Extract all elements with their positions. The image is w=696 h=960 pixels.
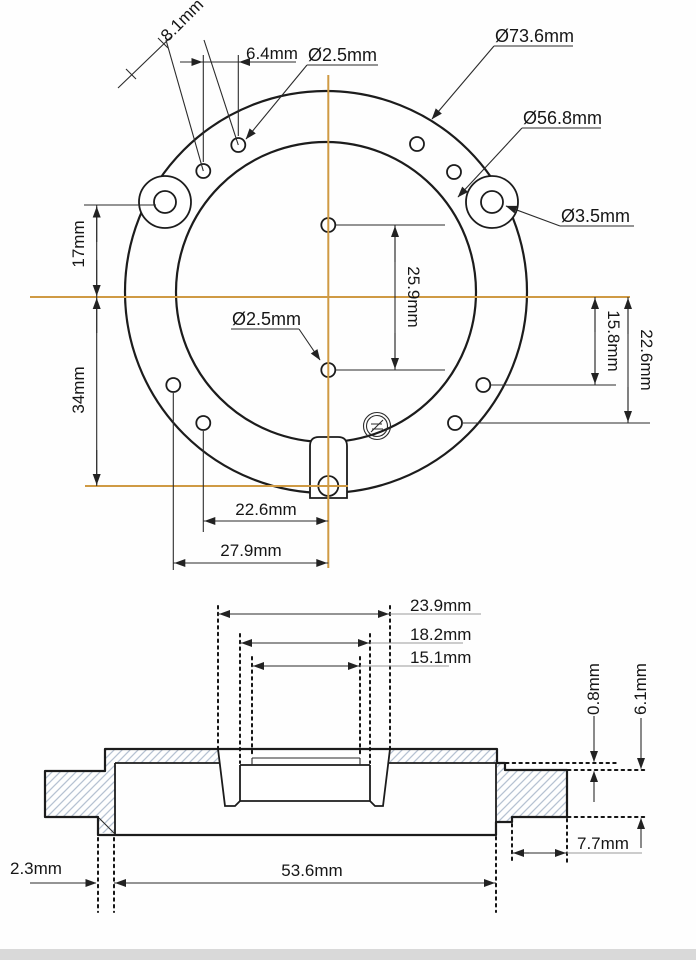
- dim-8-1: 8.1mm: [118, 0, 238, 171]
- dim-label-23-9: 23.9mm: [410, 596, 471, 615]
- dim-label-2-3: 2.3mm: [10, 859, 62, 878]
- page-edge-band: [0, 949, 696, 960]
- dim-label-6-4: 6.4mm: [246, 44, 298, 63]
- dim-label-15-8: 15.8mm: [604, 310, 623, 371]
- technical-drawing-page: 6.4mm 8.1mm Ø2.5mm Ø73.6mm Ø56.8mm: [0, 0, 696, 960]
- dim-17: 17mm: [69, 205, 156, 297]
- dim-34: 34mm: [69, 297, 97, 486]
- label-dia-2-5-center: Ø2.5mm: [231, 309, 320, 360]
- inner-bore-circle: [176, 142, 476, 442]
- dim-label-8-1: 8.1mm: [157, 0, 207, 45]
- certification-mark-icon: [364, 413, 391, 440]
- dim-18-2: 18.2mm: [240, 625, 471, 644]
- dia-small-hole-center-label: Ø2.5mm: [232, 309, 301, 329]
- dim-6-1: 6.1mm: [631, 663, 650, 848]
- label-dia-3-5: Ø3.5mm: [506, 206, 634, 226]
- dia-small-hole-top-label: Ø2.5mm: [308, 45, 377, 65]
- dim-label-17: 17mm: [69, 220, 88, 267]
- dim-label-53-6: 53.6mm: [281, 861, 342, 880]
- dim-label-15-1: 15.1mm: [410, 648, 471, 667]
- label-dia-73-6: Ø73.6mm: [432, 26, 574, 119]
- top-view: 6.4mm 8.1mm Ø2.5mm Ø73.6mm Ø56.8mm: [30, 0, 656, 570]
- dia-ear-hole-label: Ø3.5mm: [561, 206, 630, 226]
- dim-2-3: 2.3mm: [10, 859, 96, 883]
- dim-15-1: 15.1mm: [252, 648, 471, 667]
- dim-7-7: 7.7mm: [512, 834, 642, 853]
- dia-inner-label: Ø56.8mm: [523, 108, 602, 128]
- section-view: 23.9mm 18.2mm 15.1mm 0.8mm 6.1m: [10, 596, 650, 912]
- dia-flange-label: Ø73.6mm: [495, 26, 574, 46]
- dim-label-22-6-right: 22.6mm: [637, 329, 656, 390]
- outer-flange-circle: [125, 91, 527, 493]
- dim-label-0-8: 0.8mm: [584, 663, 603, 715]
- dim-23-9: 23.9mm: [218, 596, 481, 615]
- dim-53-6: 53.6mm: [114, 861, 496, 883]
- dim-label-6-1: 6.1mm: [631, 663, 650, 715]
- dim-label-7-7: 7.7mm: [577, 834, 629, 853]
- dim-0-8: 0.8mm: [584, 663, 603, 802]
- dim-label-25-9: 25.9mm: [404, 266, 423, 327]
- dim-label-27-9: 27.9mm: [220, 541, 281, 560]
- flange-drawing-svg: 6.4mm 8.1mm Ø2.5mm Ø73.6mm Ø56.8mm: [0, 0, 696, 960]
- dim-label-34: 34mm: [69, 366, 88, 413]
- dim-label-18-2: 18.2mm: [410, 625, 471, 644]
- dim-label-22-6-bottom: 22.6mm: [235, 500, 296, 519]
